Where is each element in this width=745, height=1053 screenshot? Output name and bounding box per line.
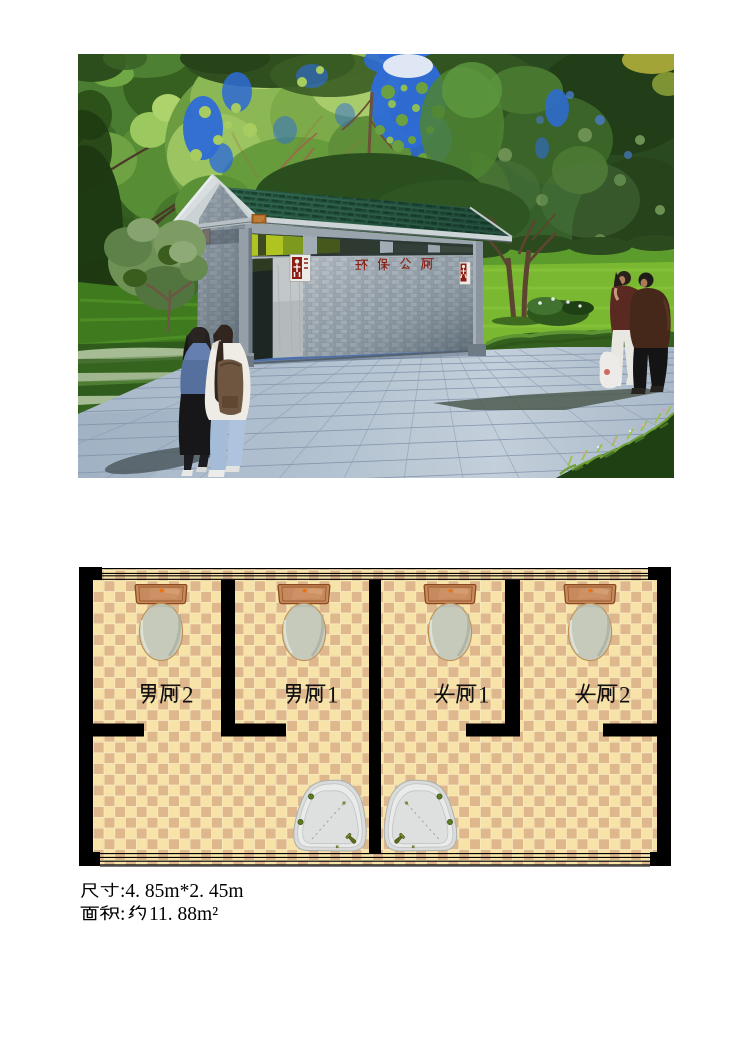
svg-text:11. 88m²: 11. 88m²: [149, 904, 218, 925]
svg-text:1: 1: [478, 683, 490, 708]
svg-text::4. 85m*2. 45m: :4. 85m*2. 45m: [120, 881, 244, 902]
svg-text::: :: [120, 904, 125, 925]
svg-text:1: 1: [327, 683, 339, 708]
svg-text:2: 2: [619, 683, 631, 708]
svg-text:2: 2: [182, 683, 194, 708]
